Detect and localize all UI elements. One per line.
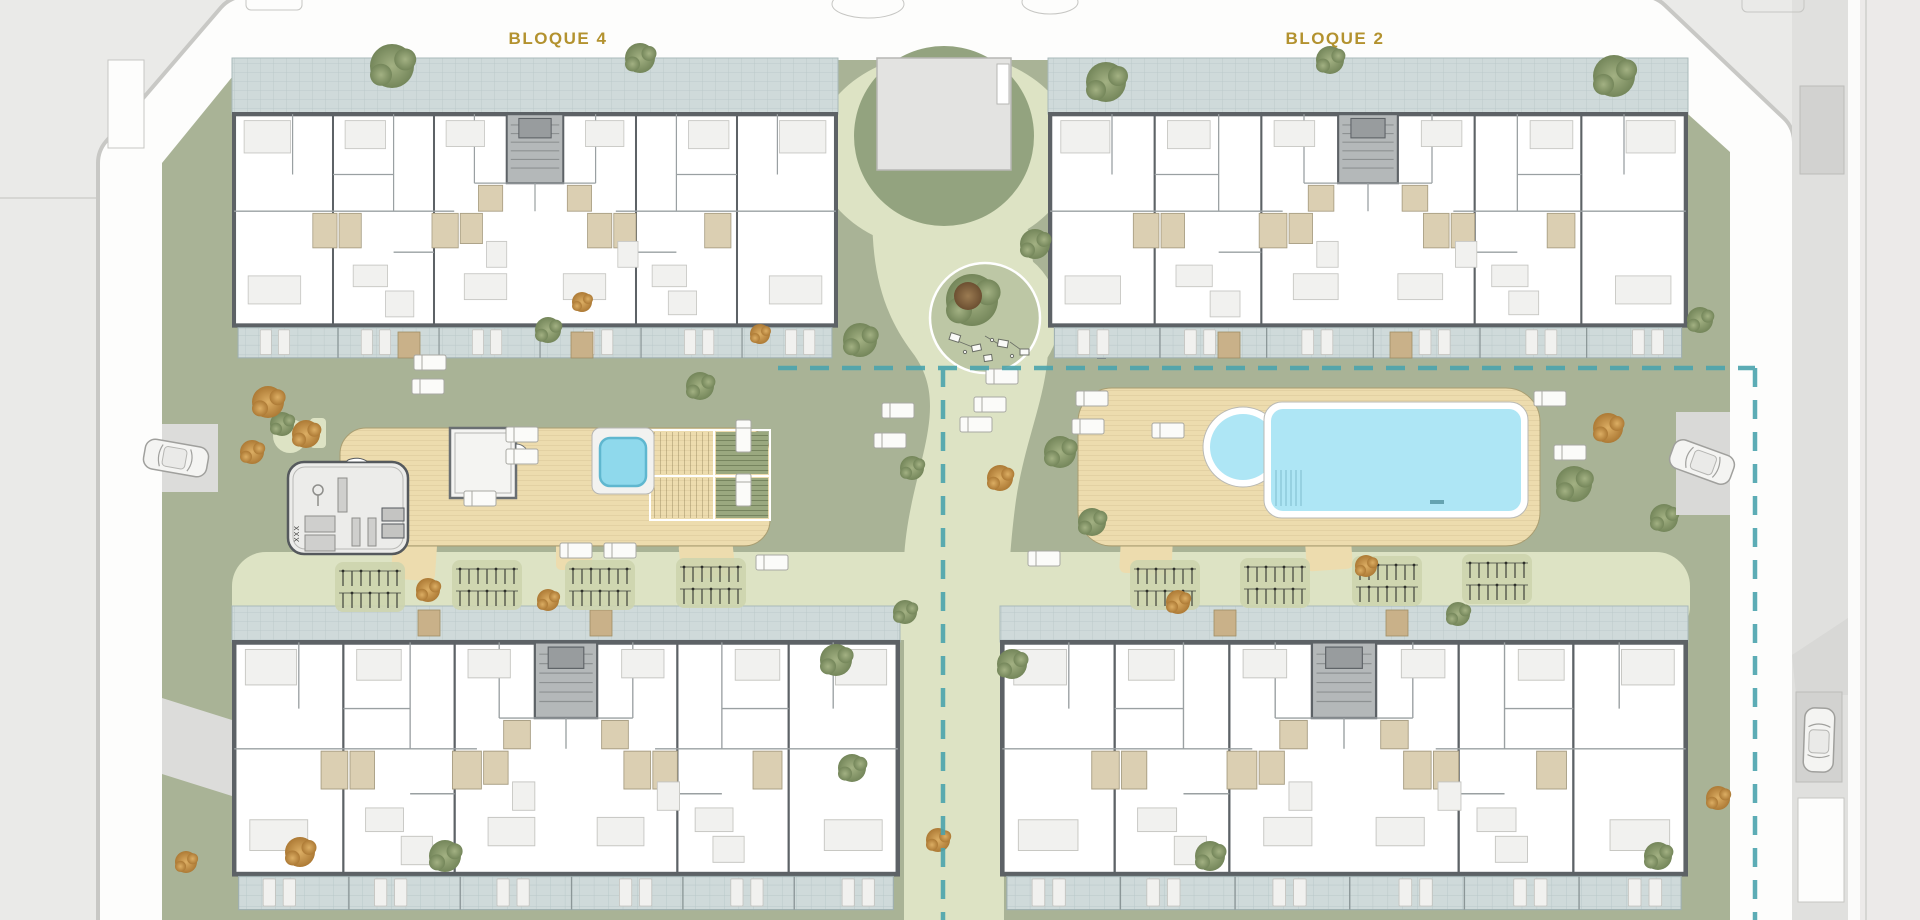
main-pool [1264,402,1528,518]
gym-equipment-marks: XXX [294,525,301,542]
jacuzzi [592,428,654,494]
tiled-promenade [232,606,900,642]
sauna-deck [650,430,770,520]
tiled-promenade [1048,58,1688,114]
parked-car-icon [1803,707,1835,772]
plaza-building [877,58,1011,170]
parking-bay [1800,86,1844,174]
parking-bay [1798,798,1844,902]
building-bloque4 [234,114,836,358]
tiled-promenade [1000,606,1688,642]
building-bottom-left [234,642,898,909]
gym: XXX [288,458,408,554]
label-bloque4: BLOQUE 4 [509,29,608,48]
building-bloque2 [1050,114,1686,358]
site-plan-page: XXX [0,0,1920,920]
tiled-promenade [232,58,838,114]
building-bottom-right [1002,642,1685,909]
playground [930,263,1040,373]
plaza-structure [854,46,1034,226]
parking-bay [108,60,144,148]
pool-ladder [1430,500,1444,504]
label-bloque2: BLOQUE 2 [1286,29,1385,48]
site-plan: XXX [0,0,1920,920]
